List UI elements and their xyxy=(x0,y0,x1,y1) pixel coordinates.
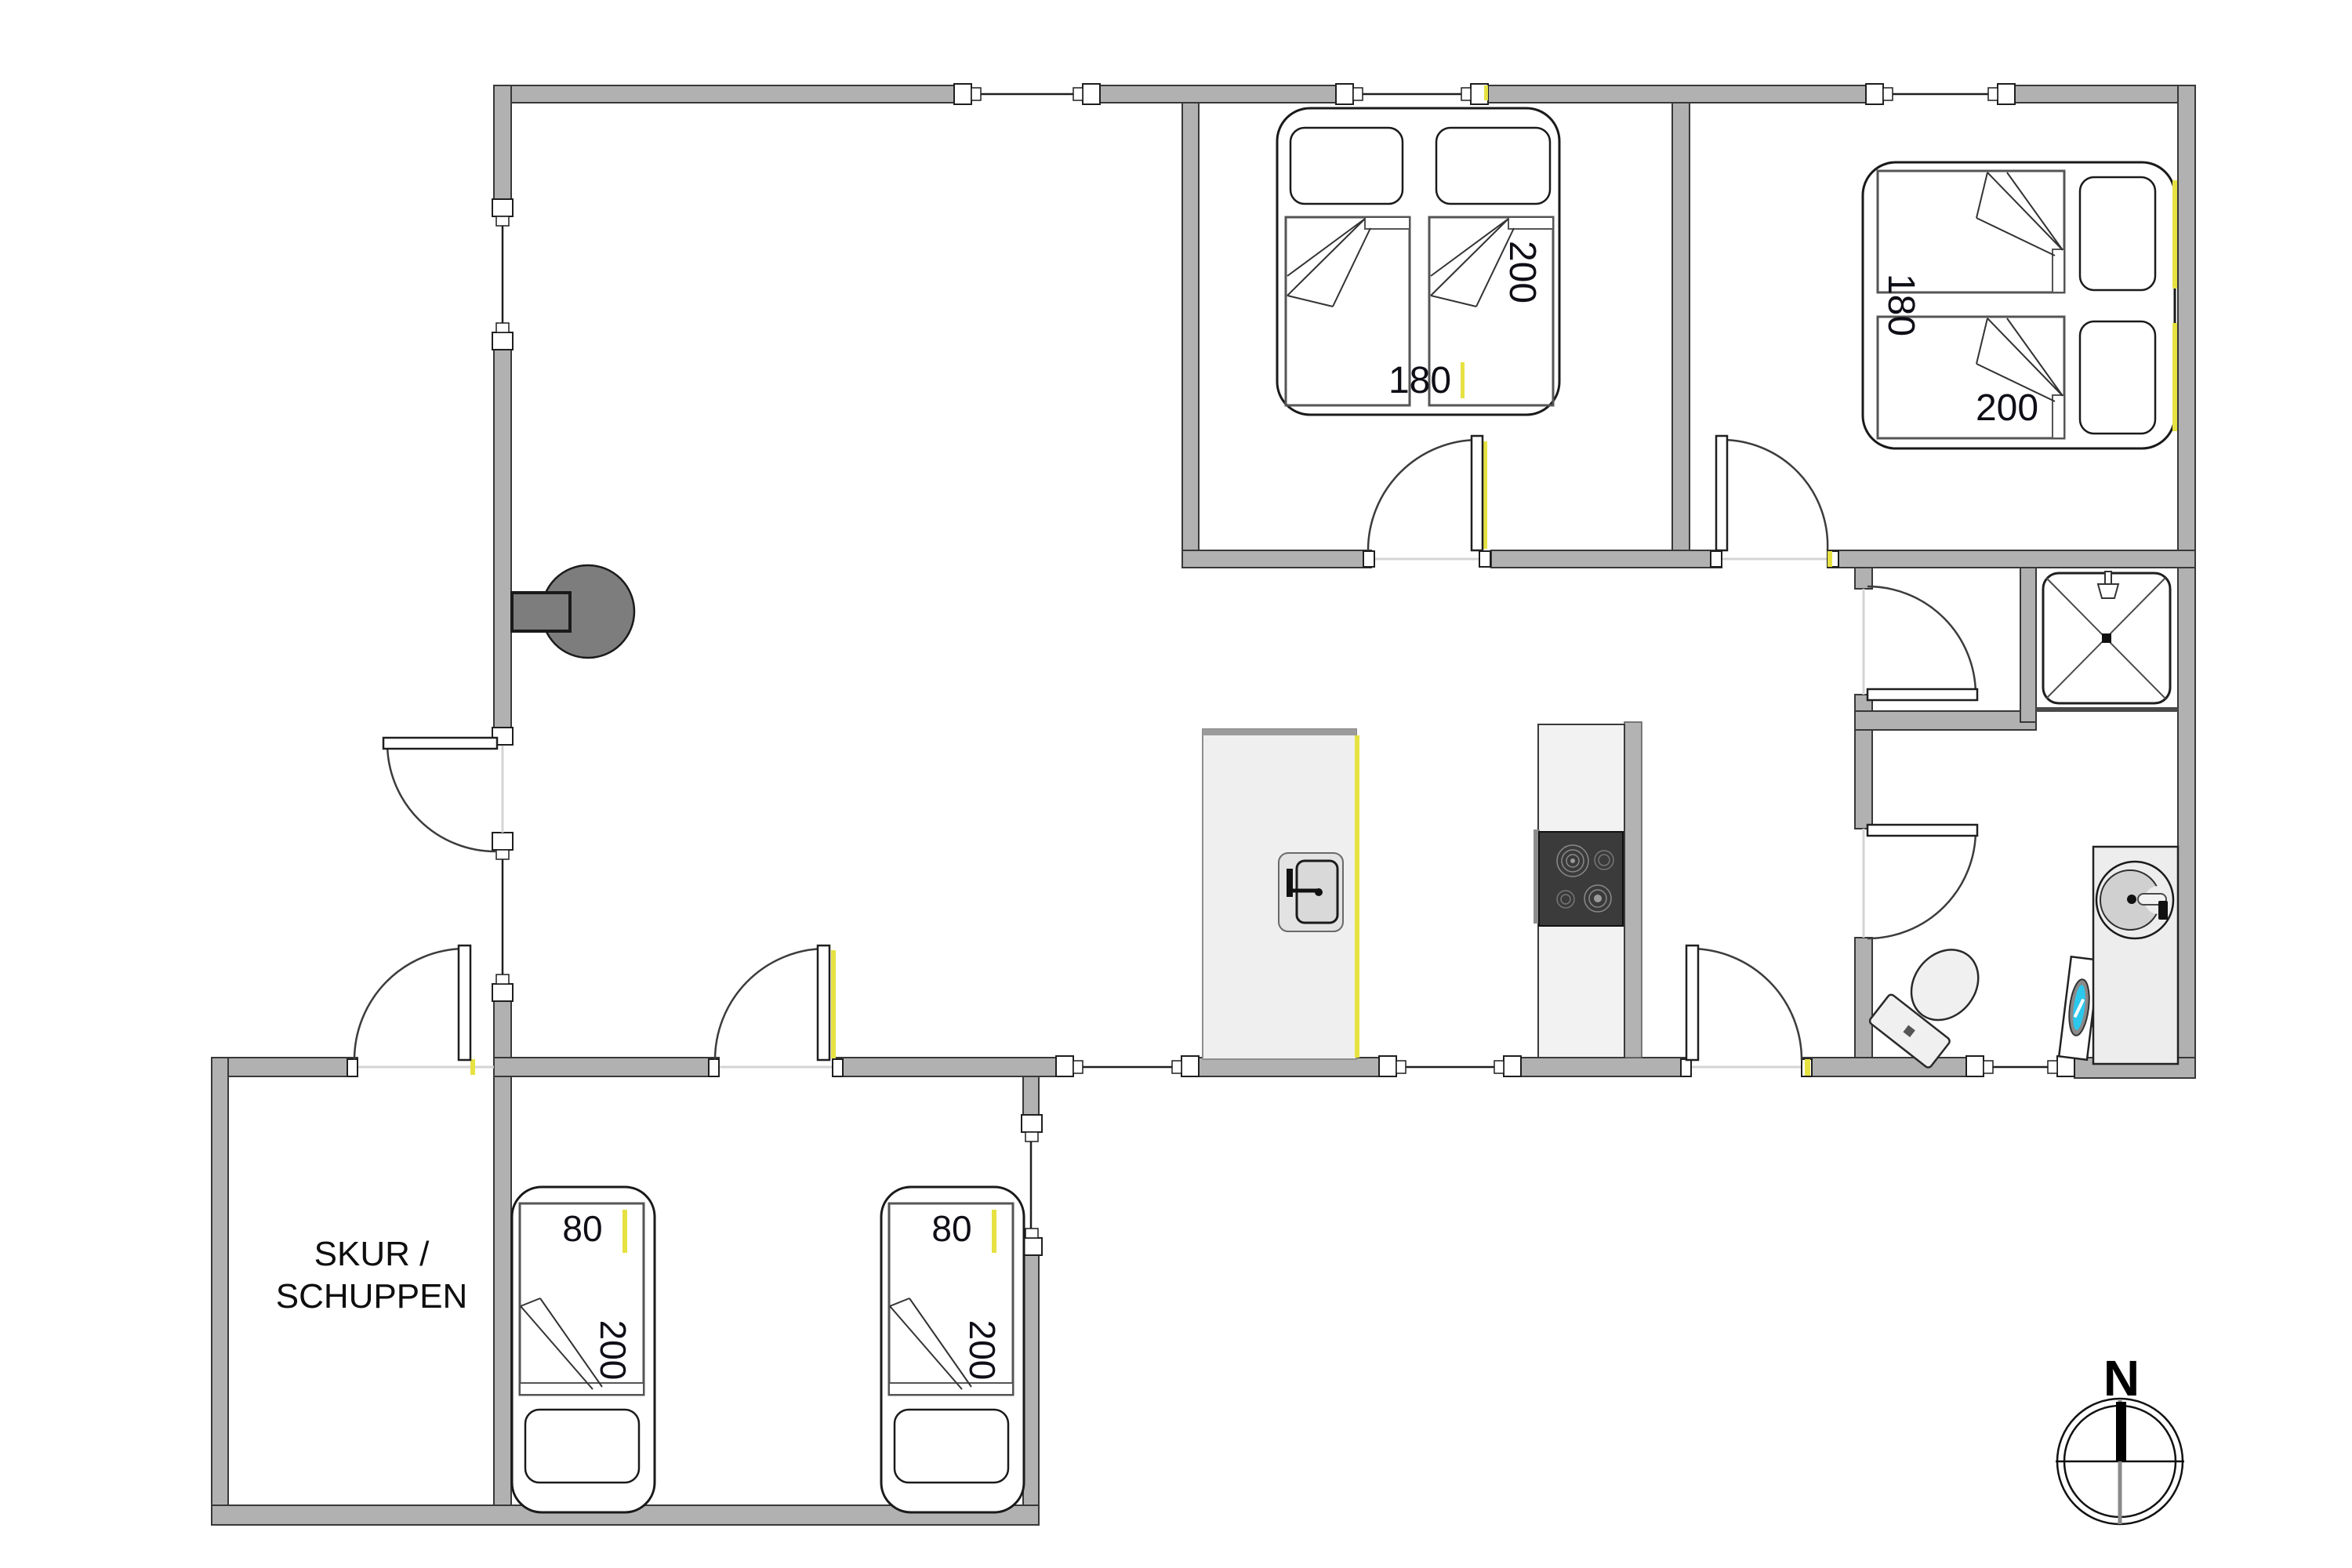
svg-text:200: 200 xyxy=(962,1320,1003,1381)
svg-text:200: 200 xyxy=(1976,387,2038,429)
svg-text:200: 200 xyxy=(1501,241,1543,303)
svg-text:SKUR /: SKUR / xyxy=(314,1235,430,1273)
svg-text:180: 180 xyxy=(1388,360,1451,401)
svg-text:N: N xyxy=(2103,1350,2140,1406)
svg-text:SCHUPPEN: SCHUPPEN xyxy=(276,1277,468,1316)
svg-text:80: 80 xyxy=(931,1208,971,1249)
svg-text:200: 200 xyxy=(593,1320,633,1381)
svg-text:180: 180 xyxy=(1880,274,1922,336)
svg-text:80: 80 xyxy=(562,1208,602,1249)
